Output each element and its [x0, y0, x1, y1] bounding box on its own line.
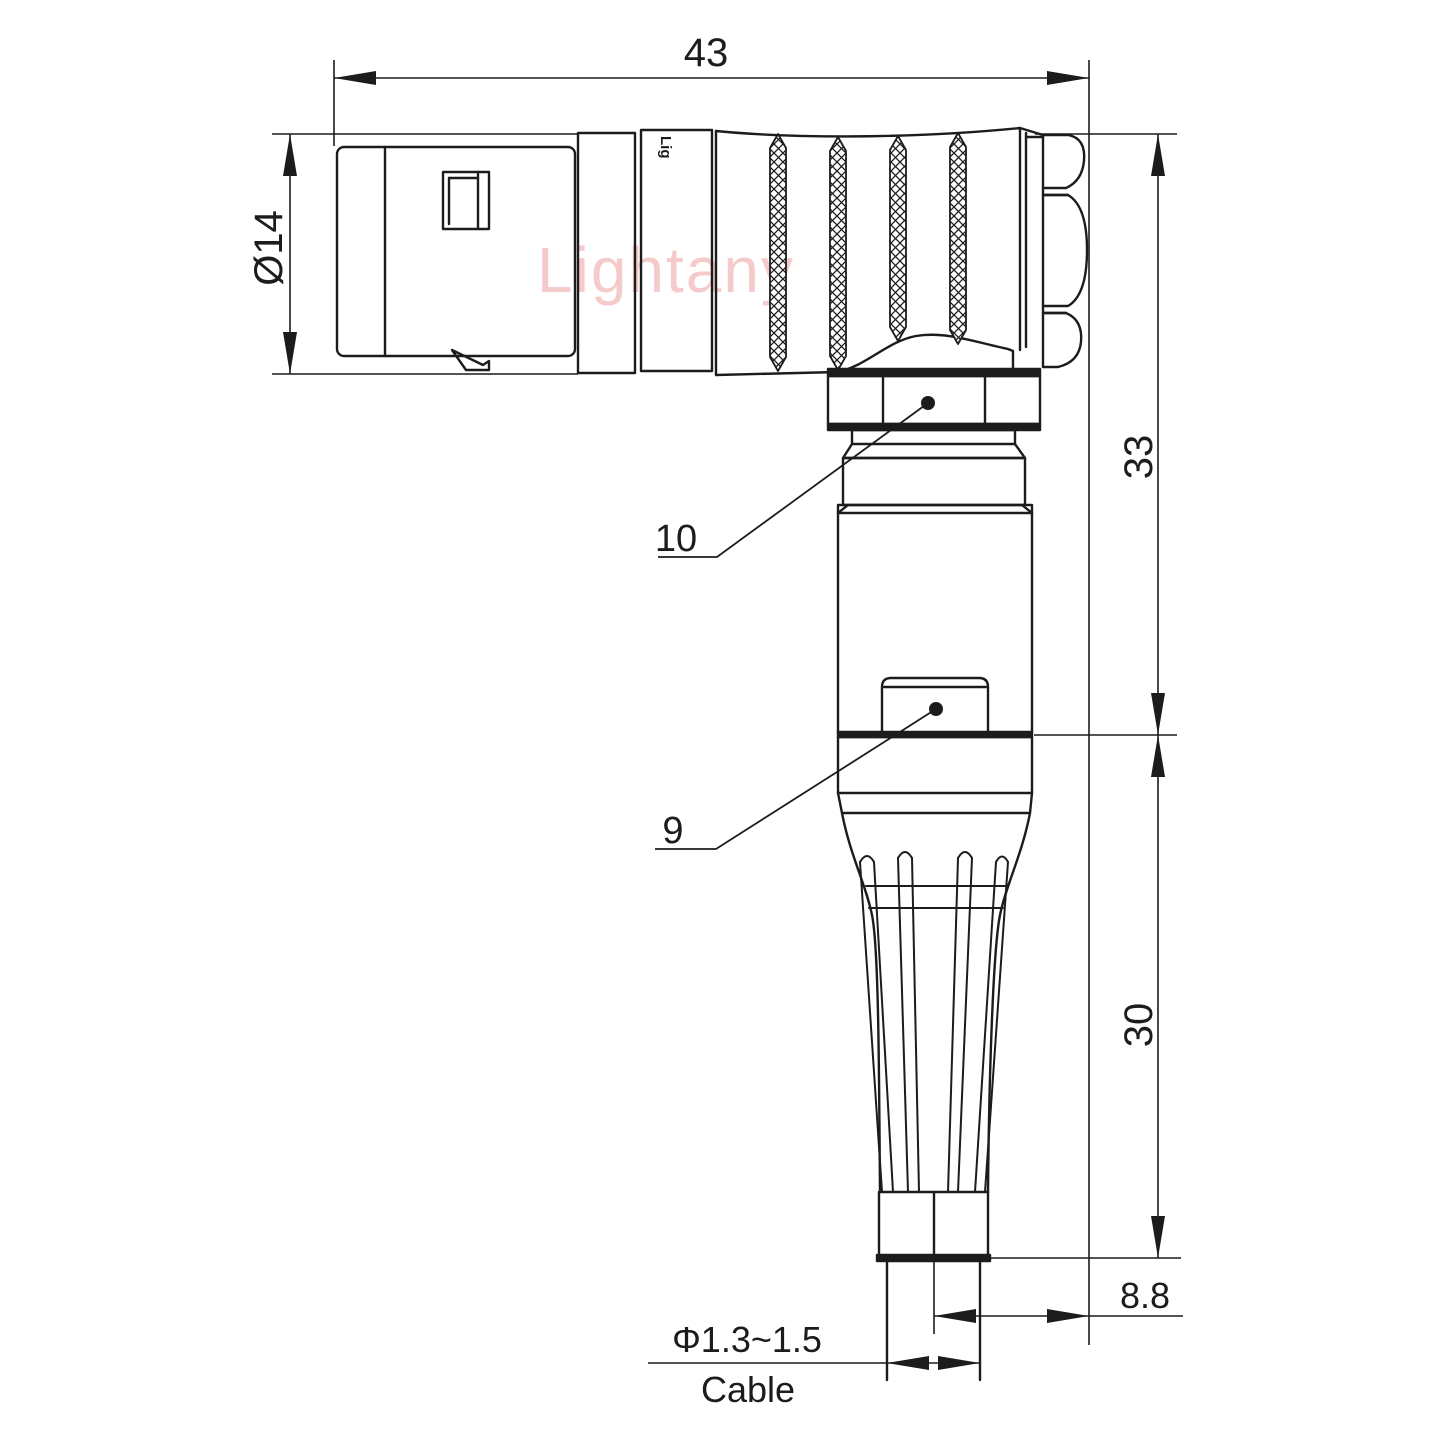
connector-body	[838, 505, 1032, 737]
dim-upper-height: 33	[1117, 435, 1161, 480]
bottom-latch	[452, 350, 489, 370]
engraved-logo: Lig	[657, 136, 674, 159]
leader-lines	[655, 403, 936, 849]
dim-lower-height: 30	[1117, 1003, 1161, 1048]
boot-retainer	[838, 737, 1032, 813]
nut-neck	[843, 430, 1025, 505]
part-label-9: 9	[662, 810, 683, 852]
back-nut	[1020, 128, 1087, 367]
latch-tab	[882, 678, 988, 732]
strain-relief-boot	[842, 813, 1030, 1192]
dim-cable-range: Φ1.3~1.5	[672, 1319, 822, 1360]
boot-end-block	[877, 1192, 990, 1261]
hex-nut	[828, 369, 1040, 430]
latch-window	[443, 172, 489, 229]
cable-word: Cable	[701, 1369, 795, 1410]
dim-overall-length: 43	[684, 31, 729, 75]
part-label-10: 10	[655, 518, 697, 560]
dim-axis-to-back: 8.8	[1120, 1275, 1170, 1316]
dim-front-diameter: Ø14	[247, 210, 291, 286]
technical-drawing-page: Lightany	[0, 0, 1440, 1440]
connector-drawing: Lightany	[0, 0, 1440, 1440]
